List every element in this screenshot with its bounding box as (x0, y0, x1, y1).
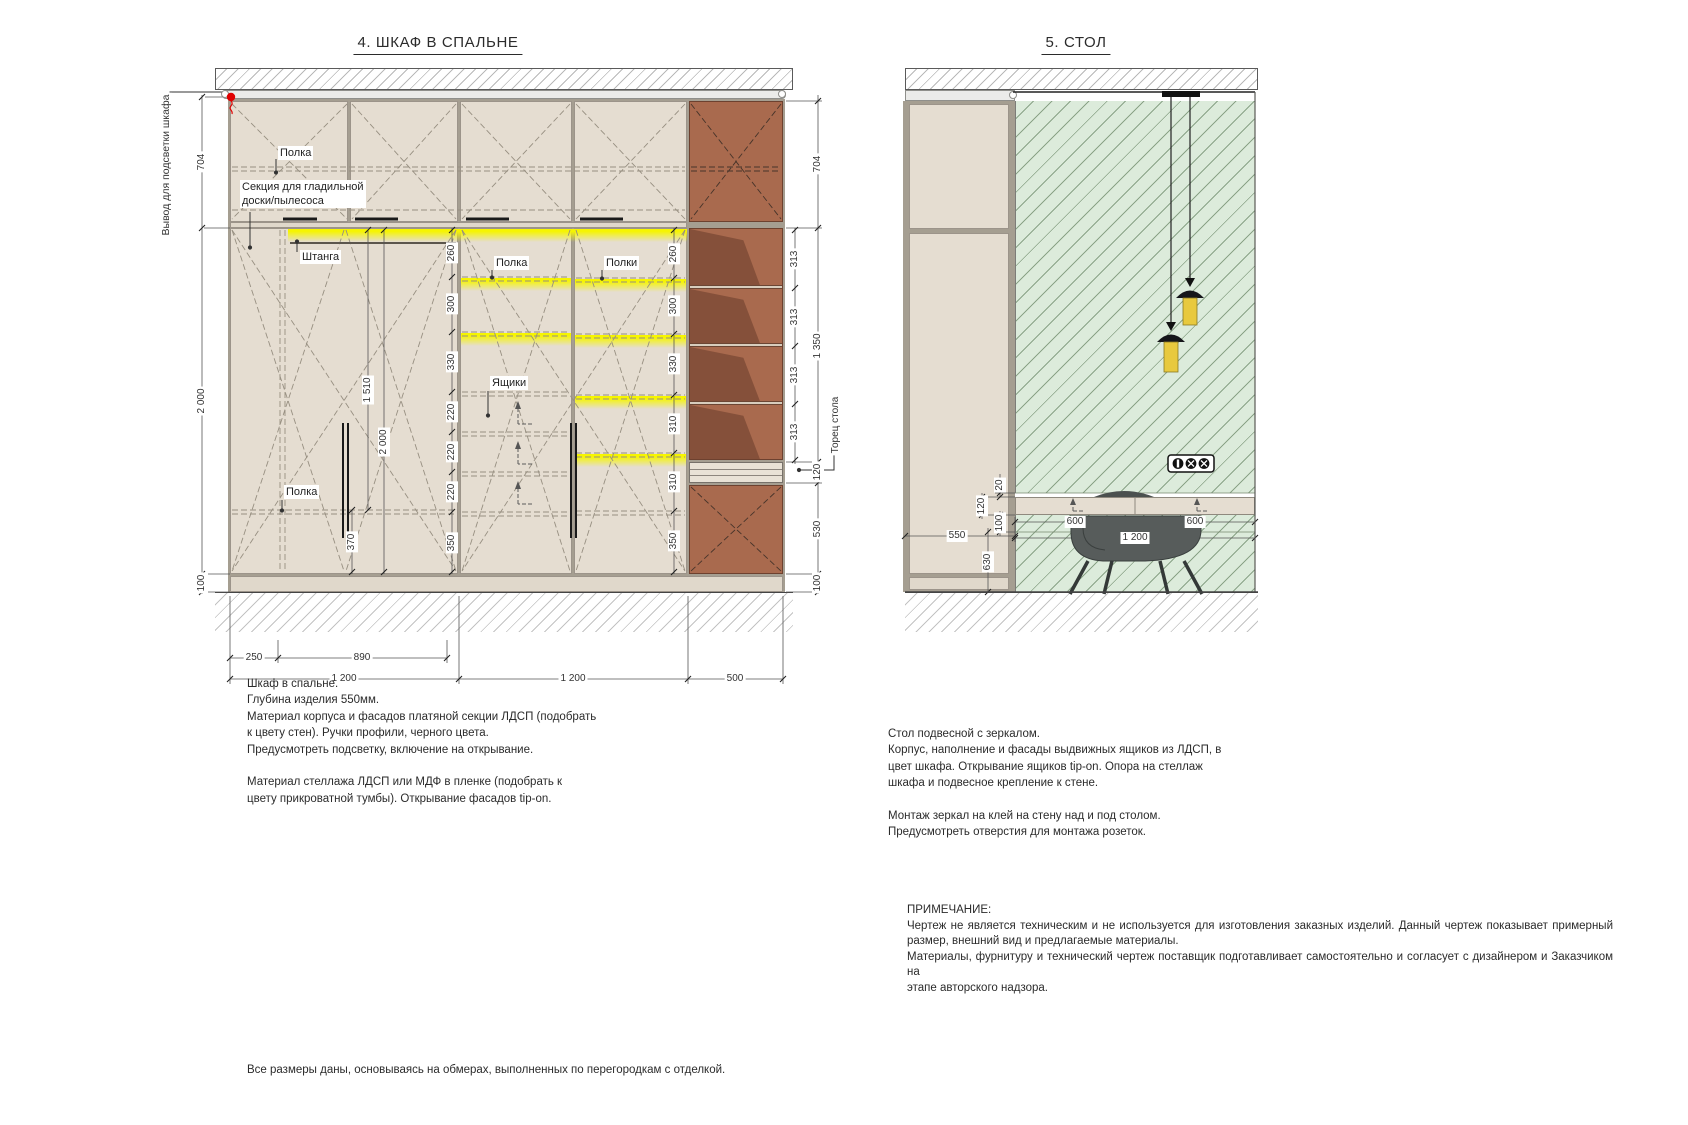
callout-shelf-top: Полка (278, 146, 313, 160)
dim-shelf-313: 313 (789, 249, 801, 270)
dim-bottom-250: 250 (244, 652, 265, 664)
desk-note: Стол подвесной с зеркалом. Корпус, напол… (888, 726, 1228, 841)
dim-chain-b: 350 (668, 531, 680, 552)
dim-inner-2000: 2 000 (378, 427, 390, 456)
led-strip (461, 278, 571, 291)
led-strip (575, 335, 686, 348)
wardrobe-note: Шкаф в спальне. Глубина изделия 550мм. М… (247, 676, 587, 807)
dim-inner-1510: 1 510 (362, 375, 374, 404)
wardrobe-top-door-4 (574, 101, 687, 222)
note-line: Корпус, наполнение и фасады выдвижных ящ… (888, 742, 1228, 758)
remark-title: ПРИМЕЧАНИЕ: (907, 903, 1613, 919)
note-line: Материал корпуса и фасадов платяной секц… (247, 709, 587, 725)
dim-desk-20: 20 (994, 477, 1006, 492)
dim-bottom-500: 500 (725, 673, 746, 685)
dim-chain-a: 220 (446, 442, 458, 463)
dim-left-2000: 2 000 (196, 386, 208, 415)
wardrobe-side-top-panel (909, 104, 1009, 229)
desk-end-label: Торец стола (830, 395, 842, 456)
dim-shelf-313: 313 (789, 307, 801, 328)
callout-ironing-section: Секция для гладильной доски/пылесоса (240, 180, 366, 208)
wardrobe-top-door-2 (350, 101, 458, 222)
remark-line: Чертеж не является техническим и не испо… (907, 919, 1613, 935)
note-line: Предусмотреть подсветку, включение на от… (247, 742, 587, 758)
note-line (247, 758, 587, 774)
dim-desk-630: 630 (982, 552, 994, 573)
dim-shelf-313: 313 (789, 365, 801, 386)
wardrobe-ceiling-hatch (215, 68, 793, 90)
remark-block: ПРИМЕЧАНИЕ: Чертеж не является техническ… (907, 903, 1613, 997)
dim-right-100: 100 (812, 573, 824, 594)
remark-line: размер, внешний вид и предлагаемые матер… (907, 934, 1613, 950)
led-strip (288, 229, 687, 242)
note-line: Стол подвесной с зеркалом. (888, 726, 1228, 742)
callout-rod: Штанга (300, 250, 341, 264)
desk-floor-hatch (905, 592, 1258, 632)
wardrobe-left-doors (230, 228, 458, 574)
dim-chain-b: 260 (668, 244, 680, 265)
desk-title: 5. СТОЛ (1041, 34, 1110, 55)
dim-bottom-890: 890 (352, 652, 373, 664)
shelving-bottom-cabinet (689, 485, 783, 574)
note-line: Глубина изделия 550мм. (247, 692, 587, 708)
shelving-top-panel (689, 101, 783, 222)
led-strip (575, 396, 686, 409)
dim-desk-600-right: 600 (1185, 516, 1206, 528)
open-shelf-cell (690, 229, 782, 285)
note-line: шкафа и подвесное крепление к стене. (888, 775, 1228, 791)
dim-right-704: 704 (812, 154, 824, 175)
dim-right-120: 120 (812, 462, 824, 483)
open-shelf-cell (690, 289, 782, 343)
note-line: Предусмотреть отверстия для монтажа розе… (888, 824, 1228, 840)
note-line: Шкаф в спальне. (247, 676, 587, 692)
wardrobe-side-plinth (909, 577, 1009, 590)
wardrobe-plinth (230, 576, 783, 592)
desk-top (1015, 497, 1255, 515)
wardrobe-crown-track (222, 90, 786, 99)
open-shelf-cell (690, 347, 782, 401)
remark-line: этапе авторского надзора. (907, 981, 1613, 997)
dim-shelf-313: 313 (789, 422, 801, 443)
dim-chain-b: 310 (668, 414, 680, 435)
dim-left-704: 704 (196, 152, 208, 173)
note-line: Материал стеллажа ЛДСП или МДФ в пленке … (247, 774, 587, 790)
led-strip (575, 454, 686, 467)
dim-chain-a: 220 (446, 402, 458, 423)
remark-line: Материалы, фурнитуру и технический черте… (907, 950, 1613, 981)
dim-right-1350: 1 350 (812, 331, 824, 360)
note-line: цвету прикроватной тумбы). Открывание фа… (247, 791, 587, 807)
note-line: к цвету стен). Ручки профили, черного цв… (247, 725, 587, 741)
desk-crown (905, 90, 1015, 101)
callout-ironing-line1: Секция для гладильной (242, 180, 364, 194)
dim-chain-a: 260 (446, 243, 458, 264)
note-line (888, 792, 1228, 808)
desk-end-stack (689, 462, 783, 483)
dim-left-100: 100 (196, 573, 208, 594)
drawing-sheet: 4. ШКАФ В СПАЛЬНЕ 5. СТОЛ (0, 0, 1688, 1125)
callout-drawers: Ящики (490, 376, 528, 390)
dim-desk-120: 120 (976, 496, 988, 517)
dim-chain-a: 330 (446, 352, 458, 373)
note-line: цвет шкафа. Открывание ящиков tip-on. Оп… (888, 759, 1228, 775)
dim-desk-1200: 1 200 (1120, 532, 1149, 544)
dim-chain-a: 350 (446, 533, 458, 554)
dim-chain-b: 310 (668, 472, 680, 493)
callout-shelf-left: Полка (284, 485, 319, 499)
led-strip (575, 279, 686, 292)
open-shelving (689, 228, 783, 460)
desk-ceiling-hatch (905, 68, 1258, 90)
dim-right-530: 530 (812, 519, 824, 540)
wardrobe-title: 4. ШКАФ В СПАЛЬНЕ (353, 34, 522, 55)
dim-chain-b: 300 (668, 296, 680, 317)
footer-note: Все размеры даны, основываясь на обмерах… (247, 1062, 725, 1078)
led-strip (461, 333, 571, 346)
dim-chain-a: 300 (446, 294, 458, 315)
lighting-output-label: Вывод для подсветки шкафа (160, 93, 172, 238)
mirror-below-desk (1015, 515, 1255, 592)
dim-desk-600-left: 600 (1065, 516, 1086, 528)
callout-shelves-right: Полки (604, 256, 639, 270)
callout-ironing-line2: доски/пылесоса (242, 194, 364, 208)
dim-inner-370: 370 (346, 532, 358, 553)
mirror-above-desk (1015, 101, 1255, 493)
dim-chain-b: 330 (668, 354, 680, 375)
note-line: Монтаж зеркал на клей на стену над и под… (888, 808, 1228, 824)
dim-chain-a: 220 (446, 482, 458, 503)
dim-desk-550: 550 (947, 530, 968, 542)
wardrobe-top-door-3 (460, 101, 572, 222)
callout-shelf-mid: Полка (494, 256, 529, 270)
open-shelf-cell (690, 405, 782, 459)
dim-desk-100: 100 (994, 513, 1006, 534)
wardrobe-floor-hatch (215, 592, 793, 632)
